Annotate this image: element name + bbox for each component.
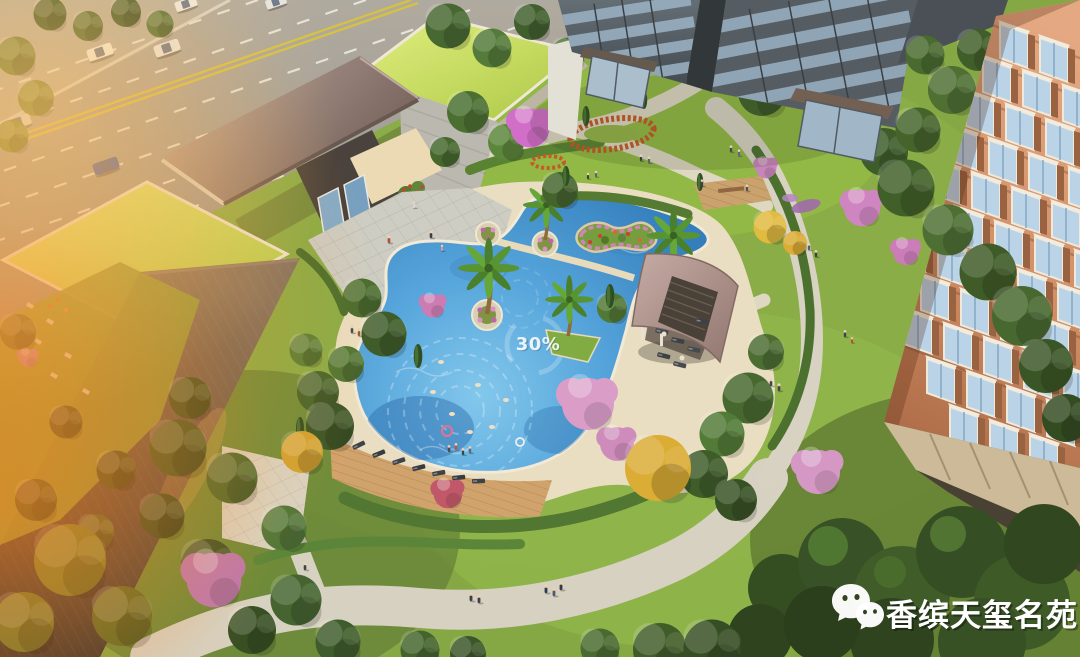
progress-watermark: 30% 30%	[516, 334, 561, 356]
sunlight-glow	[0, 0, 1080, 657]
wechat-account-name: 香缤天玺名苑	[886, 598, 1078, 634]
rendering-image: Aerial daytime architectural rendering o…	[0, 0, 1080, 657]
svg-text:30%: 30%	[516, 334, 561, 355]
